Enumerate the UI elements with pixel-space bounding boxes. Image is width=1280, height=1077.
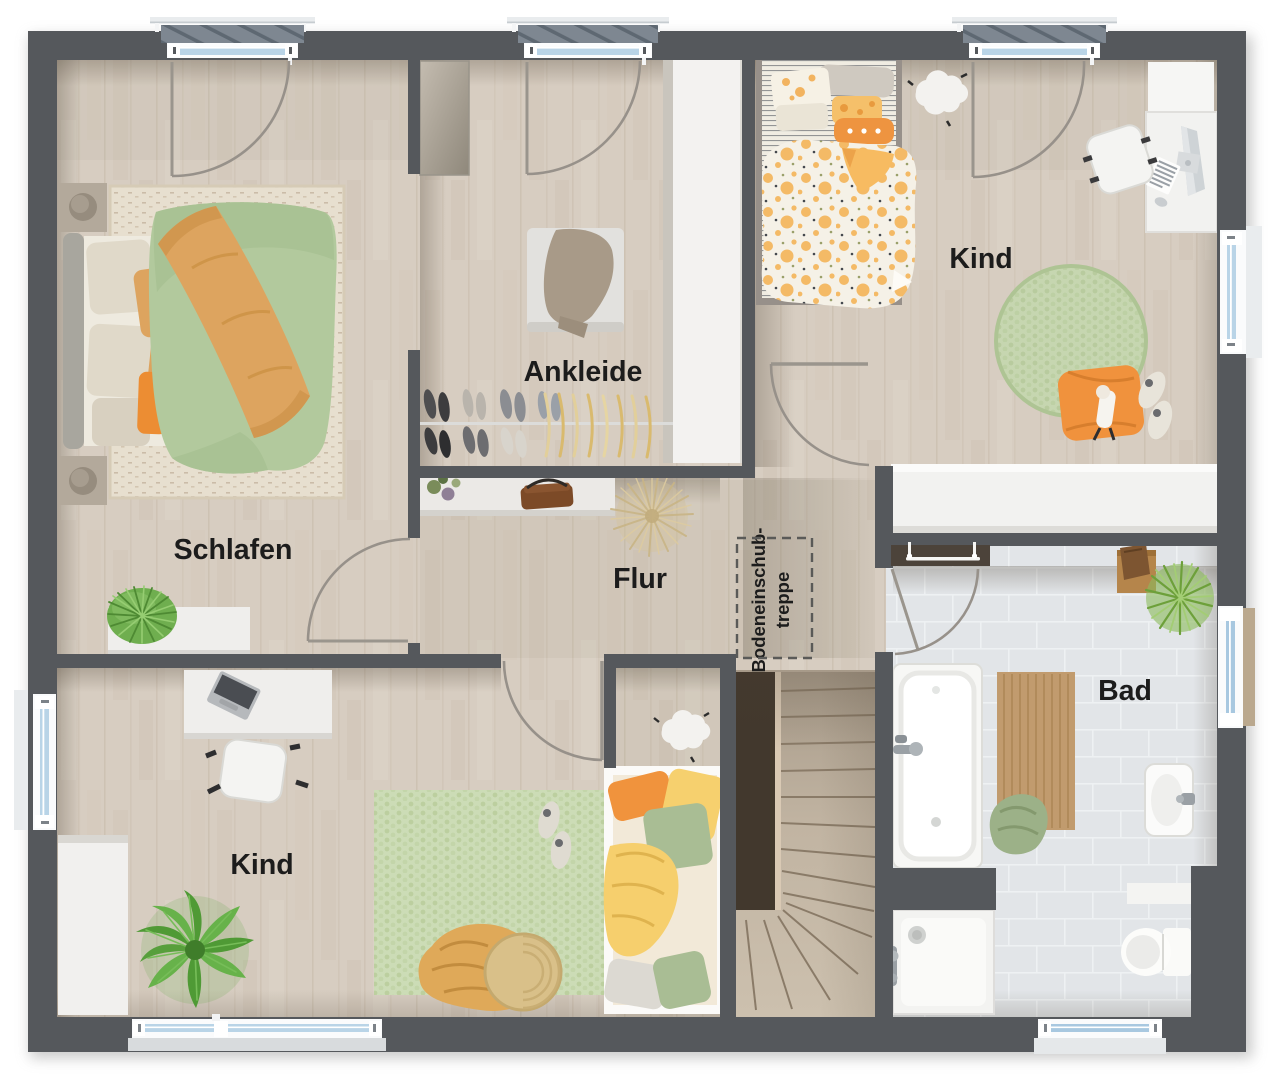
svg-text:Flur: Flur [613, 563, 667, 595]
svg-text:treppe: treppe [772, 572, 793, 629]
svg-text:Kind: Kind [230, 849, 293, 881]
svg-text:Kind: Kind [949, 243, 1012, 275]
svg-text:Schlafen: Schlafen [174, 534, 293, 566]
svg-text:Bad: Bad [1098, 675, 1152, 707]
svg-text:Ankleide: Ankleide [524, 356, 643, 388]
svg-text:Bodeneinschub-: Bodeneinschub- [748, 528, 769, 673]
